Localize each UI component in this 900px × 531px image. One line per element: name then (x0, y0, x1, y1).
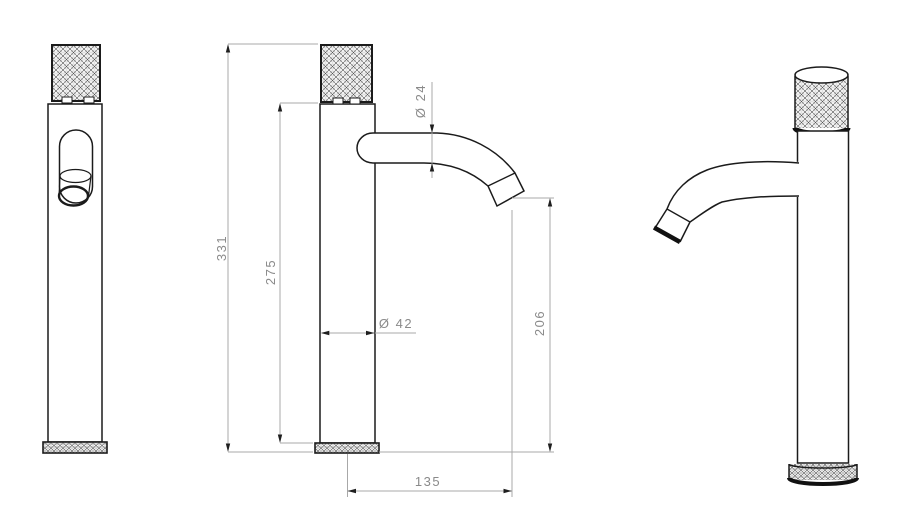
arrow-down (226, 444, 230, 453)
front-view (43, 45, 107, 453)
arrow-down (430, 125, 434, 134)
knob-neck-tab (62, 97, 72, 103)
knob-neck-tab (333, 98, 343, 104)
knob-neck-tab (350, 98, 360, 104)
knurled-base-side (315, 443, 379, 453)
arrow-up (430, 163, 434, 172)
arrow-left (348, 489, 357, 493)
faucet-body-3d (798, 131, 849, 463)
knob-neck-tab (84, 97, 94, 103)
dim-label-outlet-height: 206 (532, 310, 547, 336)
spout-side (357, 133, 524, 206)
dim-label-overall-height: 331 (214, 235, 229, 261)
arrow-up (548, 198, 552, 207)
technical-drawing-page: 331 275 Ø 24 Ø 42 206 135 (0, 0, 900, 531)
arrow-up (226, 44, 230, 53)
arrow-down (278, 435, 282, 444)
knurled-knob-side (321, 45, 372, 102)
knob-top-ellipse (795, 67, 848, 83)
dim-label-spout-diameter: Ø 24 (413, 84, 428, 118)
technical-drawing-canvas: 331 275 Ø 24 Ø 42 206 135 (0, 0, 900, 531)
dim-body-height-lines (280, 103, 318, 443)
dim-label-spout-reach: 135 (415, 474, 441, 489)
dim-label-body-height: 275 (263, 259, 278, 285)
arrow-right (504, 489, 513, 493)
dim-label-body-diameter: Ø 42 (379, 316, 413, 331)
arrow-up (278, 103, 282, 112)
arrow-down (548, 444, 552, 453)
knurled-base-front (43, 442, 107, 453)
knurled-knob-front (52, 45, 100, 101)
perspective-view (654, 67, 857, 484)
dim-overall-height-lines (228, 44, 318, 452)
